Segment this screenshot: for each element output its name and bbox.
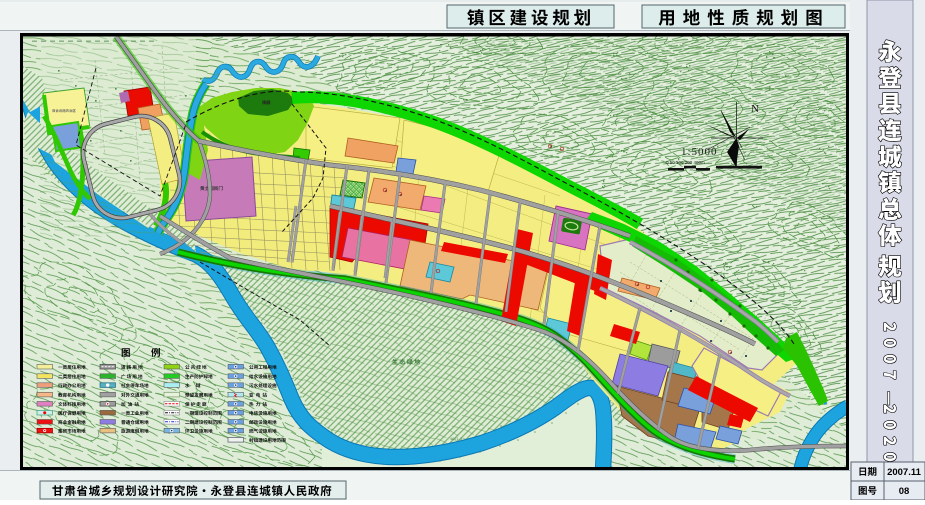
svg-text:0 50 100 200: 0 50 100 200 400m [666, 160, 705, 165]
svg-text:2007.11: 2007.11 [887, 467, 922, 478]
svg-text:08: 08 [899, 486, 910, 497]
svg-text:1:5000: 1:5000 [681, 146, 718, 158]
svg-text:N: N [751, 103, 759, 115]
